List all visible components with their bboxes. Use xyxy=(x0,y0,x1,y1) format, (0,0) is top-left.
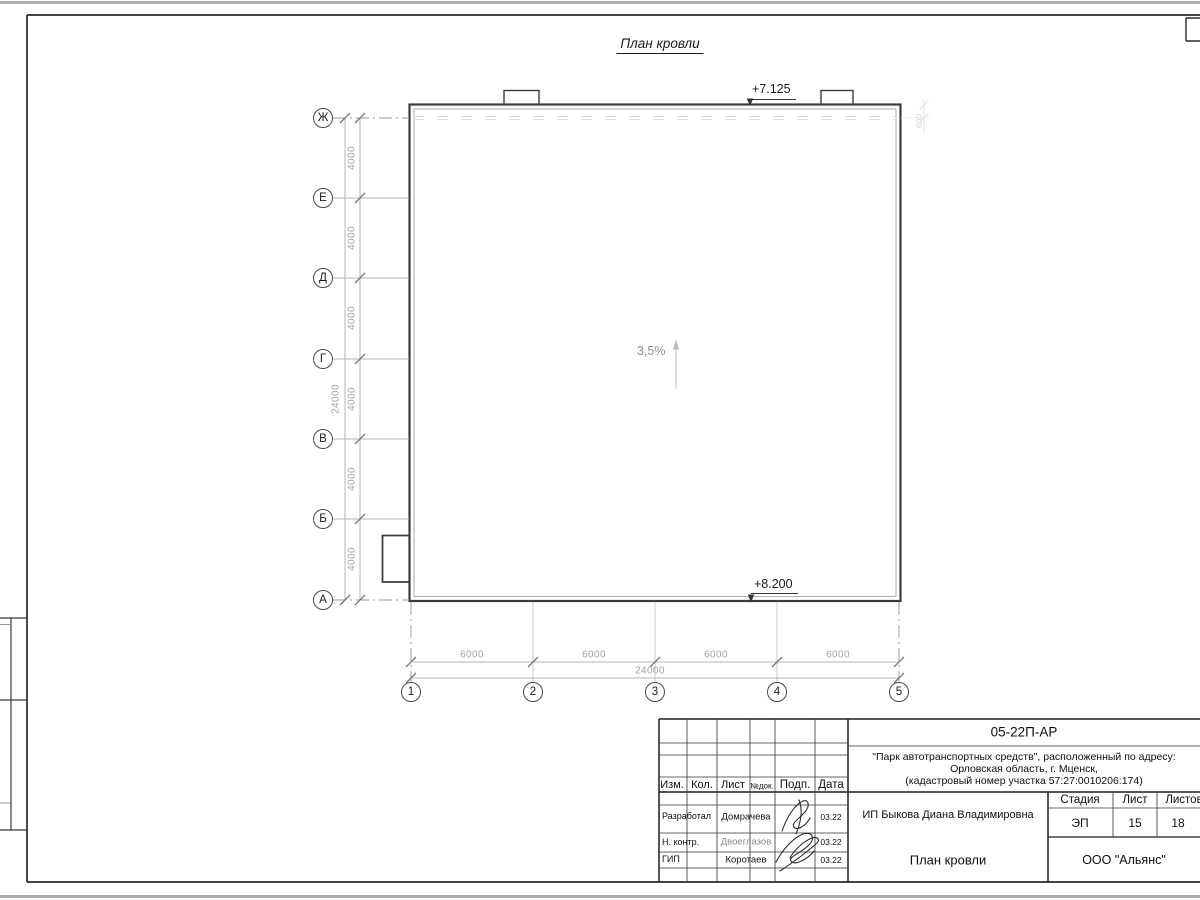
left-margin-table xyxy=(0,618,27,830)
elevation-top-label: +7.125 xyxy=(752,82,791,96)
sheet-number-value: 15 xyxy=(1128,816,1141,830)
header-sheet: Лист xyxy=(1123,794,1148,806)
slope-label: 3,5% xyxy=(637,344,666,358)
grid-bubble-col-1: 1 xyxy=(401,682,421,702)
row-dim-3: 4000 xyxy=(347,306,358,330)
project-line-2: Орловская область, г. Мценск, xyxy=(950,763,1098,775)
grid-bubble-row-g: Г xyxy=(313,349,333,369)
grid-bubble-col-2: 2 xyxy=(523,682,543,702)
drawing-view-title: План кровли xyxy=(616,36,703,54)
header-kol: Кол. xyxy=(691,779,713,791)
grid-bubble-row-d: Д xyxy=(313,268,333,288)
client-name: ИП Быкова Диана Владимировна xyxy=(862,809,1033,821)
doc-number: 05-22П-АР xyxy=(991,725,1058,740)
sign-role-ncontrol: Н. контр. xyxy=(662,837,699,847)
row-dim-2: 4000 xyxy=(347,226,358,250)
sign-name-ncontrol: Двоеглазов xyxy=(721,837,772,848)
grid-bubble-row-zh: Ж xyxy=(313,108,333,128)
signature-strokes xyxy=(776,800,818,871)
col-dim-3: 6000 xyxy=(704,650,728,661)
grid-bubble-row-a: А xyxy=(313,590,333,610)
row-dim-1: 4000 xyxy=(347,146,358,170)
grid-bubble-col-5: 5 xyxy=(889,682,909,702)
row-dim-5: 4000 xyxy=(347,467,358,491)
dimension-ticks xyxy=(340,113,904,683)
header-sheets: Листов xyxy=(1165,794,1200,806)
col-dim-4: 6000 xyxy=(826,650,850,661)
sheet-drawing-title: План кровли xyxy=(910,853,987,868)
col-dim-1: 6000 xyxy=(460,650,484,661)
grid-bubble-row-e: Е xyxy=(313,188,333,208)
drawing-sheet: План кровли +7.125 +8.200 3,5% 600 Ж Е Д… xyxy=(0,0,1200,900)
sign-role-gip: ГИП xyxy=(662,854,680,864)
sign-date-developer: 03.22 xyxy=(820,812,841,822)
row-total-dim: 24000 xyxy=(331,384,342,414)
project-line-3: (кадастровый номер участка 57:27:0010206… xyxy=(905,775,1142,787)
roof-hatch-boxes xyxy=(504,91,853,105)
row-dim-4: 4000 xyxy=(347,387,358,411)
company-name: ООО "Альянс" xyxy=(1082,853,1166,867)
wall-protrusion xyxy=(383,536,410,583)
header-stage: Стадия xyxy=(1060,794,1099,806)
elevation-marks xyxy=(748,99,798,601)
frame-corner-box xyxy=(1186,18,1200,41)
grid-bubble-row-v: В xyxy=(313,429,333,449)
stage-value: ЭП xyxy=(1071,816,1088,830)
dimension-lines xyxy=(345,118,899,678)
row-grid-lines xyxy=(333,118,409,600)
header-data: Дата xyxy=(818,779,843,791)
elevation-bottom-label: +8.200 xyxy=(754,577,793,591)
slope-arrow xyxy=(674,341,679,389)
col-total-dim: 24000 xyxy=(635,666,665,677)
header-izm: Изм. xyxy=(660,779,684,791)
col-dim-2: 6000 xyxy=(582,650,606,661)
header-podp: Подп. xyxy=(780,779,811,791)
sign-name-gip: Коротаев xyxy=(725,855,766,866)
sign-role-developer: Разработал xyxy=(662,811,711,821)
header-ndok: №док. xyxy=(750,782,773,791)
project-line-1: "Парк автотранспортных средств", располо… xyxy=(872,751,1175,763)
hidden-grid-line xyxy=(413,117,930,120)
grid-bubble-row-b: Б xyxy=(313,509,333,529)
sign-name-developer: Домрачева xyxy=(721,812,770,823)
grid-bubble-col-4: 4 xyxy=(767,682,787,702)
row-dim-6: 4000 xyxy=(347,547,358,571)
header-list: Лист xyxy=(721,779,745,791)
grid-bubble-col-3: 3 xyxy=(645,682,665,702)
sign-date-gip: 03.22 xyxy=(820,855,841,865)
sheets-total-value: 18 xyxy=(1171,816,1184,830)
small-dim-label: 600 xyxy=(914,114,924,128)
sign-date-ncontrol: 03.22 xyxy=(820,837,841,847)
